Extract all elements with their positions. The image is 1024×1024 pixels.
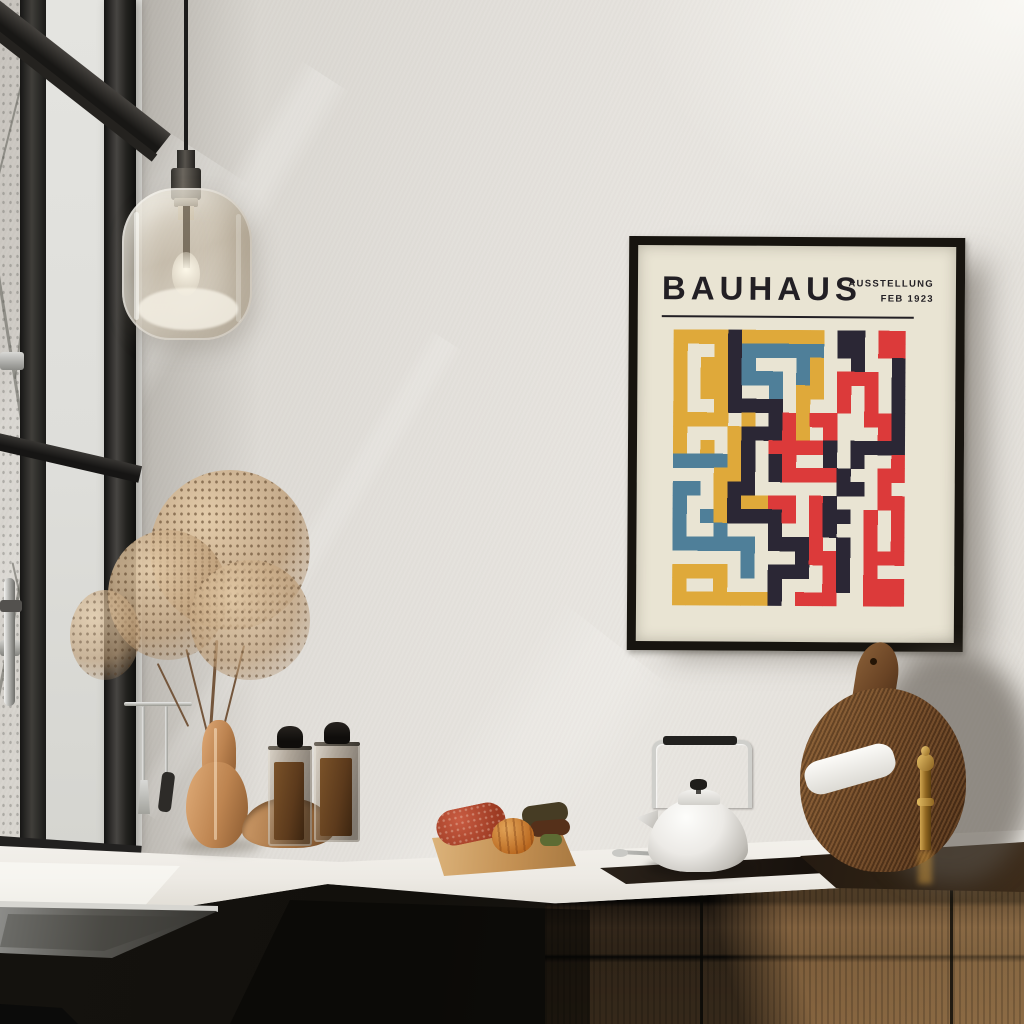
drawer-seam: [950, 880, 953, 1024]
glass-highlight: [236, 214, 241, 322]
hanging-utensil: [142, 706, 145, 784]
lamp-cord: [184, 0, 188, 158]
kitchen-scene: BAUHAUS AUSSTELLUNG FEB 1923: [0, 0, 1024, 1024]
brass-faucet: [920, 768, 931, 850]
glass-highlight: [134, 212, 139, 320]
drawer-seam: [700, 880, 703, 1024]
poster-divider-line: [662, 315, 914, 319]
kettle-handle-grip: [663, 736, 737, 745]
jar-contents: [320, 758, 352, 836]
window-pane: [46, 0, 110, 846]
spoon-head: [612, 849, 628, 857]
jar-lid: [277, 726, 303, 748]
lamp-socket: [177, 150, 195, 170]
dried-flower-cluster: [190, 560, 310, 680]
poster-frame: BAUHAUS AUSSTELLUNG FEB 1923: [627, 236, 966, 652]
poster-subtitle: AUSSTELLUNG FEB 1923: [848, 277, 934, 307]
cabinet-corner-shadow: [230, 900, 590, 1024]
brass-faucet-finial: [917, 754, 934, 771]
kettle-lid-knob: [690, 779, 707, 790]
bauhaus-poster: BAUHAUS AUSSTELLUNG FEB 1923: [636, 245, 956, 643]
window-handle-bracket: [0, 600, 22, 612]
poster-subtitle-line2: FEB 1923: [848, 292, 934, 307]
hanging-utensil: [165, 706, 168, 776]
dried-flower-cluster: [70, 590, 140, 680]
jar-lid: [324, 722, 350, 744]
green-vegetable: [540, 834, 562, 846]
brass-faucet-collar: [917, 798, 934, 806]
maze-artwork: [672, 329, 906, 606]
window-handle: [4, 578, 15, 706]
window-mullion-left: [20, 0, 46, 846]
window-hinge: [0, 352, 24, 370]
poster-subtitle-line1: AUSSTELLUNG: [848, 277, 934, 292]
jar-contents: [274, 762, 304, 840]
lamp-bulb: [172, 252, 200, 296]
poster-title: BAUHAUS: [662, 269, 862, 308]
vase-highlight: [214, 728, 217, 840]
utensil-rail: [124, 702, 192, 706]
brass-reflection: [918, 850, 932, 884]
board-hanging-hole: [870, 658, 877, 665]
brass-faucet-tip: [921, 746, 930, 756]
small-pumpkin: [492, 818, 534, 854]
wooden-vase: [186, 762, 248, 848]
